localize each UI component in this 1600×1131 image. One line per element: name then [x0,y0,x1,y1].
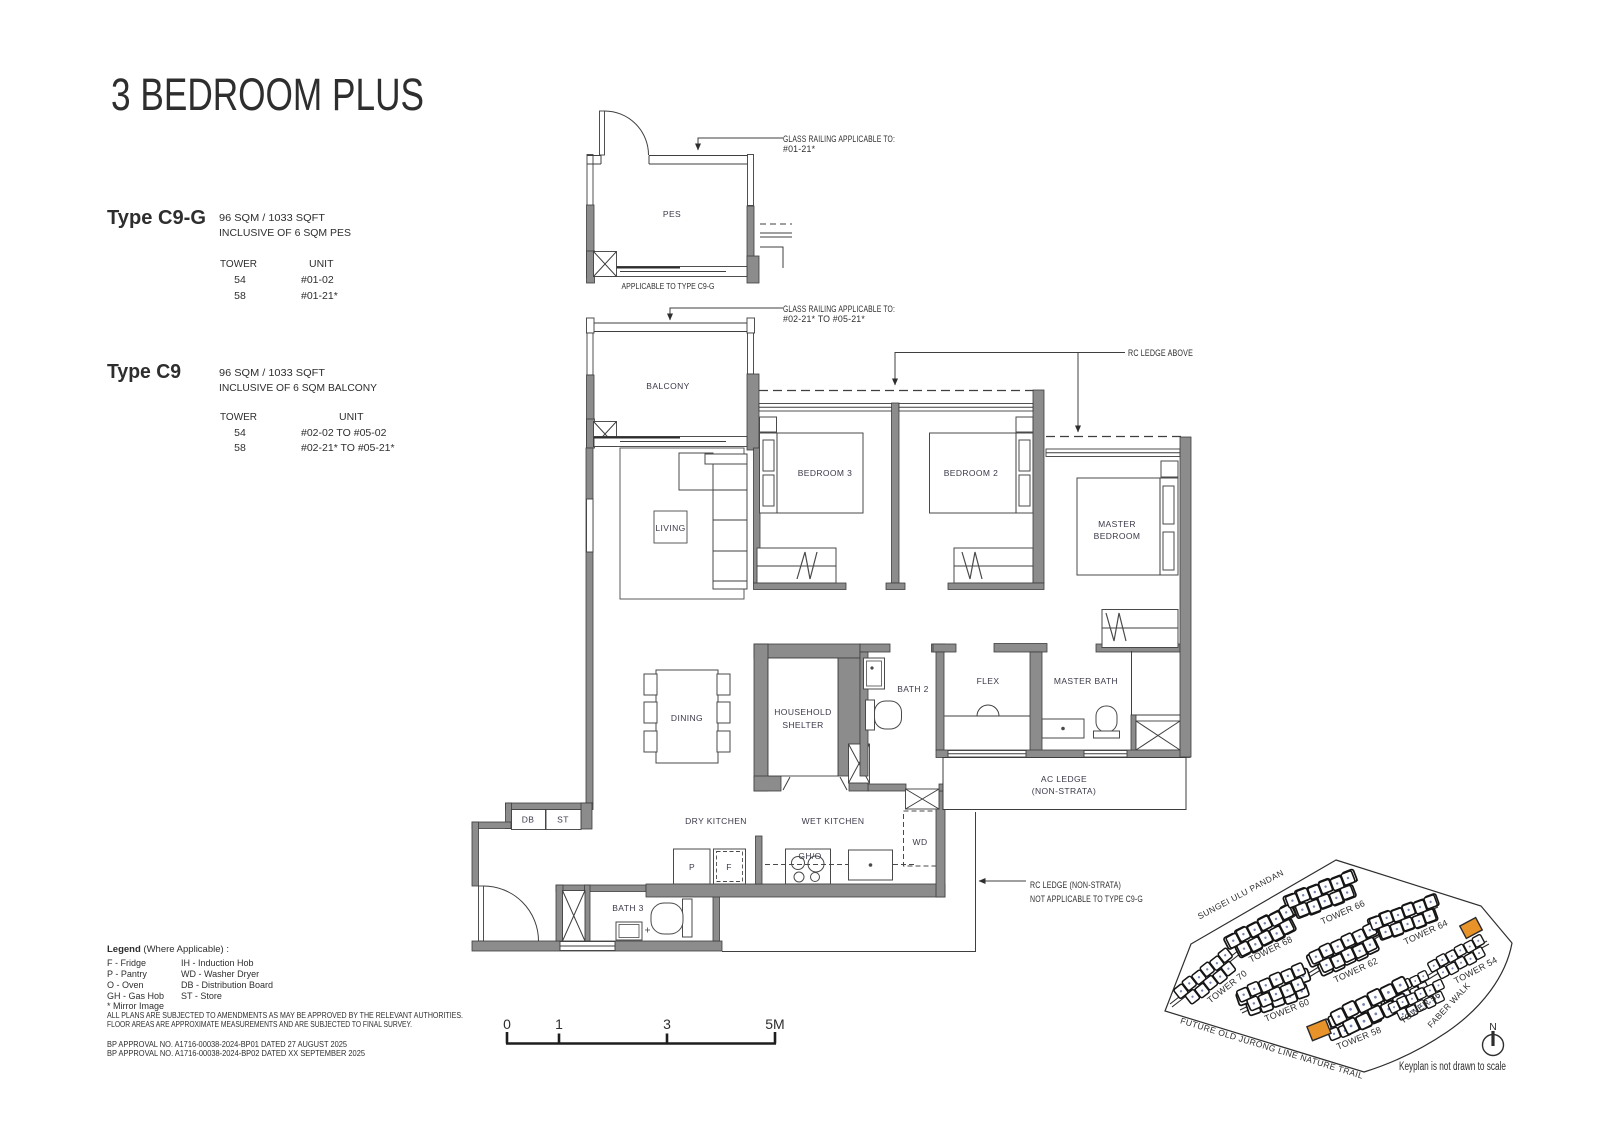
svg-text:IH - Induction Hob: IH - Induction Hob [181,958,254,968]
svg-text:P: P [689,862,695,872]
svg-text:1: 1 [555,1016,563,1032]
svg-text:#01-21*: #01-21* [783,144,816,154]
svg-text:BATH 3: BATH 3 [612,903,644,913]
svg-text:54: 54 [234,274,246,286]
svg-text:O - Oven: O - Oven [107,980,144,990]
svg-text:#01-02: #01-02 [301,274,334,286]
svg-text:APPLICABLE TO TYPE C9-G: APPLICABLE TO TYPE C9-G [622,282,715,291]
svg-text:RC LEDGE (NON-STRATA): RC LEDGE (NON-STRATA) [1030,880,1121,890]
svg-text:Keyplan is not drawn to scale: Keyplan is not drawn to scale [1399,1061,1506,1073]
svg-text:F: F [726,862,732,872]
svg-text:TOWER: TOWER [220,411,257,423]
svg-text:BP APPROVAL NO. A1716-00038-20: BP APPROVAL NO. A1716-00038-2024-BP02 DA… [107,1048,365,1058]
svg-text:58: 58 [234,290,246,302]
svg-text:UNIT: UNIT [309,258,334,270]
svg-text:FLEX: FLEX [977,676,1000,686]
svg-text:#02-02 TO #05-02: #02-02 TO #05-02 [301,427,387,439]
svg-text:Type C9-G: Type C9-G [107,207,206,229]
svg-text:BEDROOM: BEDROOM [1094,531,1141,541]
svg-text:GH/O: GH/O [798,851,821,861]
svg-text:#02-21* TO #05-21*: #02-21* TO #05-21* [783,314,865,324]
svg-text:WET KITCHEN: WET KITCHEN [802,816,865,826]
svg-text:AC LEDGE: AC LEDGE [1041,774,1087,784]
svg-text:3: 3 [663,1016,671,1032]
svg-text:Legend (Where Applicable) :: Legend (Where Applicable) : [107,944,229,955]
svg-text:#02-21* TO #05-21*: #02-21* TO #05-21* [301,442,395,454]
svg-text:0: 0 [503,1016,511,1032]
svg-text:BEDROOM 3: BEDROOM 3 [798,468,853,478]
svg-text:DB - Distribution Board: DB - Distribution Board [181,980,273,990]
svg-text:GH - Gas Hob: GH - Gas Hob [107,991,164,1001]
svg-text:(NON-STRATA): (NON-STRATA) [1032,786,1096,796]
svg-text:LIVING: LIVING [655,523,685,533]
svg-text:DB: DB [522,815,535,825]
svg-text:#01-21*: #01-21* [301,290,338,302]
svg-text:BEDROOM 2: BEDROOM 2 [944,468,999,478]
svg-text:RC LEDGE ABOVE: RC LEDGE ABOVE [1128,348,1193,358]
svg-text:FLOOR AREAS ARE APPROXIMATE ME: FLOOR AREAS ARE APPROXIMATE MEASUREMENTS… [107,1019,412,1029]
svg-text:N: N [1489,1021,1497,1033]
svg-text:BALCONY: BALCONY [646,381,689,391]
svg-text:58: 58 [234,442,246,454]
svg-text:DRY KITCHEN: DRY KITCHEN [685,816,747,826]
svg-text:5M: 5M [765,1016,784,1032]
svg-text:F - Fridge: F - Fridge [107,958,146,968]
svg-text:3 BEDROOM PLUS: 3 BEDROOM PLUS [111,69,424,120]
svg-text:96 SQM / 1033 SQFT: 96 SQM / 1033 SQFT [219,212,326,224]
svg-text:54: 54 [234,427,246,439]
svg-text:WD - Washer Dryer: WD - Washer Dryer [181,969,259,979]
svg-text:UNIT: UNIT [339,411,364,423]
svg-text:MASTER BATH: MASTER BATH [1054,676,1118,686]
svg-text:INCLUSIVE OF 6 SQM PES: INCLUSIVE OF 6 SQM PES [219,227,351,239]
svg-text:P - Pantry: P - Pantry [107,969,147,979]
svg-text:DINING: DINING [671,713,703,723]
svg-text:SHELTER: SHELTER [782,720,823,730]
svg-text:INCLUSIVE OF 6 SQM BALCONY: INCLUSIVE OF 6 SQM BALCONY [219,382,377,394]
svg-text:WD: WD [913,837,928,847]
svg-text:96 SQM / 1033 SQFT: 96 SQM / 1033 SQFT [219,367,326,379]
svg-text:Type C9: Type C9 [107,361,181,383]
svg-text:PES: PES [663,209,681,219]
svg-text:GLASS RAILING APPLICABLE TO:: GLASS RAILING APPLICABLE TO: [783,134,895,144]
svg-text:ST: ST [557,815,569,825]
svg-text:BATH 2: BATH 2 [897,684,929,694]
svg-text:GLASS RAILING APPLICABLE TO:: GLASS RAILING APPLICABLE TO: [783,304,895,314]
svg-text:MASTER: MASTER [1098,519,1136,529]
svg-text:NOT APPLICABLE TO TYPE C9-G: NOT APPLICABLE TO TYPE C9-G [1030,894,1143,904]
svg-text:ST - Store: ST - Store [181,991,222,1001]
svg-text:TOWER: TOWER [220,258,257,270]
svg-text:HOUSEHOLD: HOUSEHOLD [774,707,831,717]
